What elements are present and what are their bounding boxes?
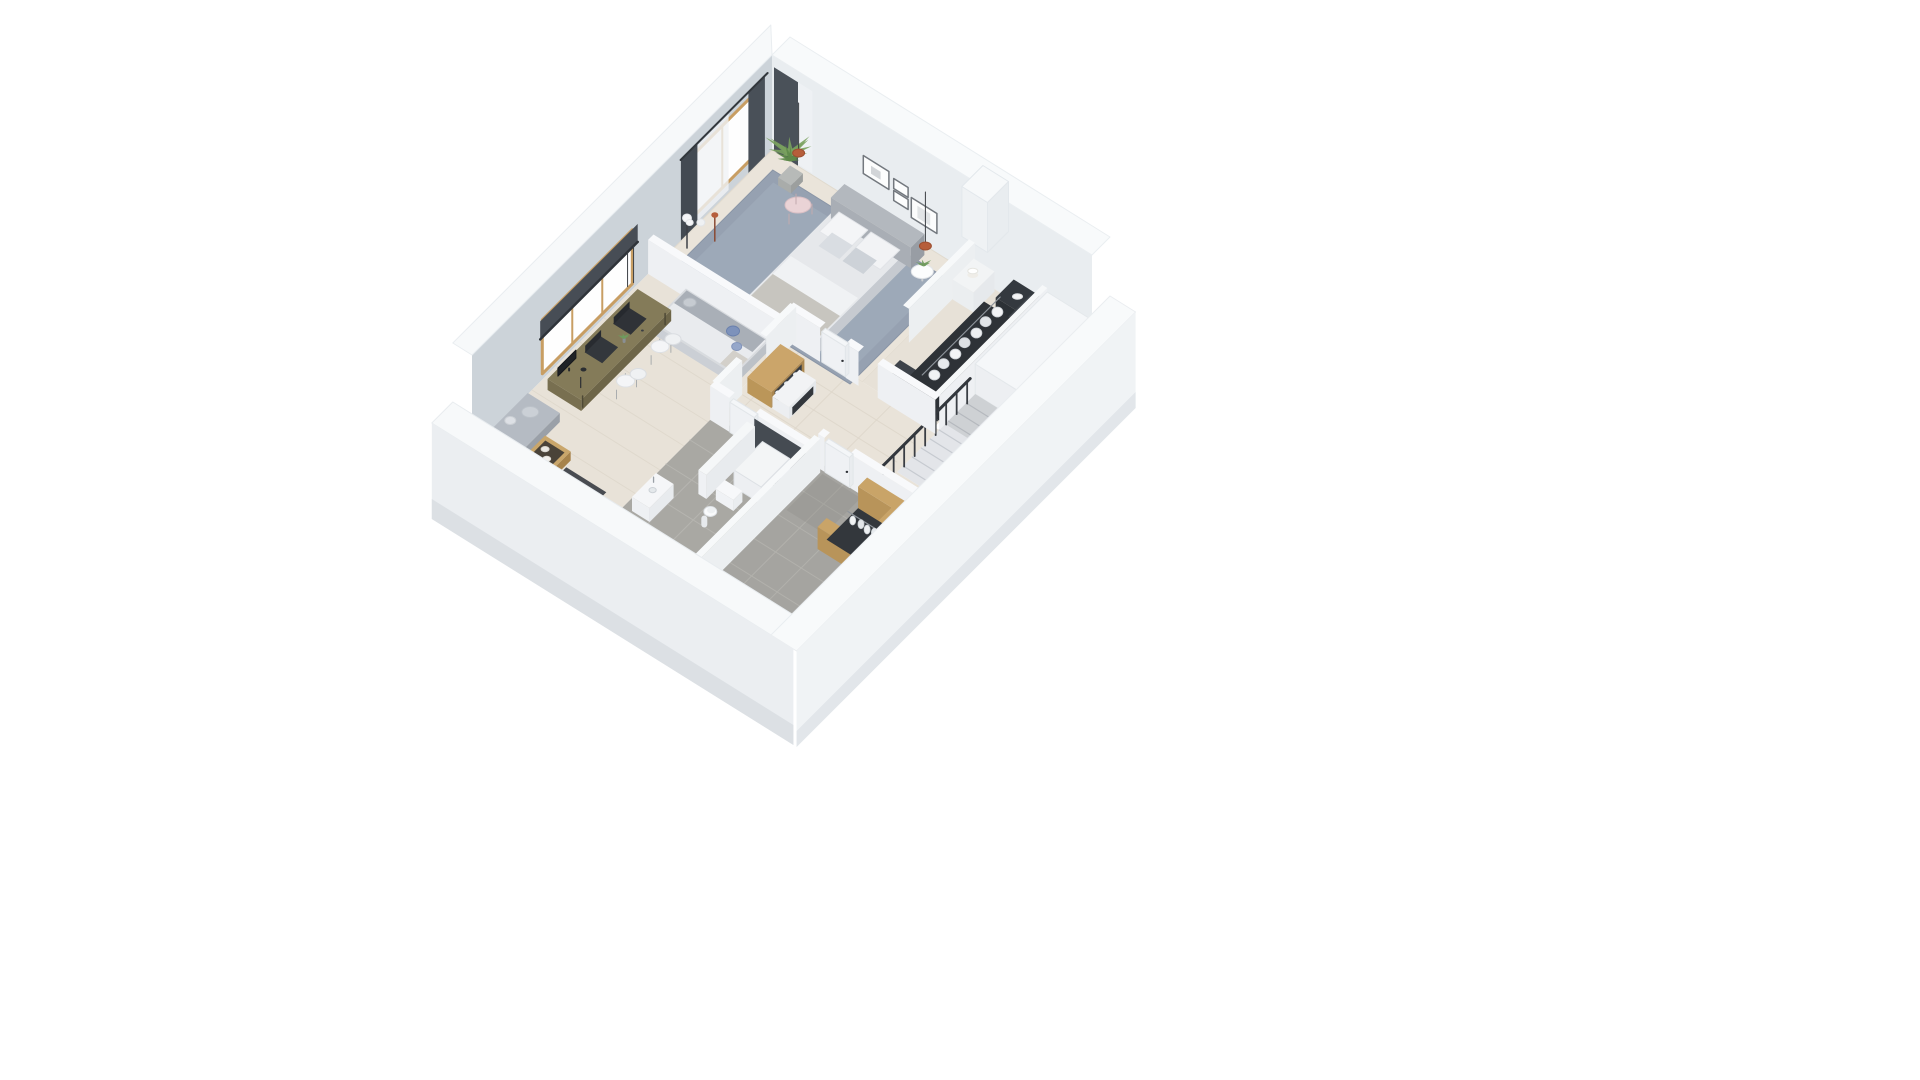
closet-folded-towels-2 <box>968 268 978 274</box>
round-side-table-pink <box>785 197 811 213</box>
bedroom-door-leaf <box>845 343 849 377</box>
nightstand-round-white <box>911 265 933 279</box>
office-lounge-cushion <box>522 407 539 418</box>
shower-door-leaf <box>850 454 854 488</box>
hanging-clothes-7 <box>929 370 940 380</box>
shower-hanging-clothes-1 <box>850 516 856 525</box>
shower-hanging-clothes-3 <box>864 525 870 534</box>
hanging-clothes-1 <box>992 307 1003 317</box>
hanging-clothes-6 <box>938 359 949 369</box>
page-background <box>0 0 1920 1080</box>
bathroom-partition-wall <box>698 470 706 499</box>
floor-lamp-globe-mid <box>697 219 705 226</box>
office-lounge-bolster <box>505 417 516 425</box>
shower-door-handle <box>846 471 849 473</box>
closet-dark-shelf-towel <box>1013 294 1023 300</box>
floor-lamp-globe-low <box>686 220 693 226</box>
copper-floor-lamp-shade <box>711 212 718 218</box>
office-chair-1-back <box>665 334 681 345</box>
bedroom-door-handle <box>841 360 844 362</box>
toilet-seat <box>707 507 715 513</box>
towel-roll-1 <box>541 447 549 452</box>
hanging-clothes-2 <box>980 317 991 327</box>
shower-hanging-clothes-2 <box>858 520 864 529</box>
hanging-clothes-4 <box>959 338 970 348</box>
desk-lamp-shade <box>581 368 587 372</box>
office-chair-2-back <box>630 369 646 380</box>
hanging-clothes-5 <box>950 349 961 359</box>
floorplan-3d-render <box>0 0 1920 1080</box>
daybed-gray-pillow <box>683 298 696 307</box>
desk-mouse <box>641 330 644 332</box>
pendant-lamp-copper-left <box>793 149 805 157</box>
daybed-blue-round-pillow-small <box>732 343 742 351</box>
bedroom-curtain-sheer-corner <box>798 82 812 173</box>
pendant-lamp-copper-right <box>919 242 931 250</box>
hanging-clothes-3 <box>971 328 982 338</box>
daybed-blue-round-pillow-large <box>727 326 740 336</box>
sink-basin <box>649 488 656 493</box>
